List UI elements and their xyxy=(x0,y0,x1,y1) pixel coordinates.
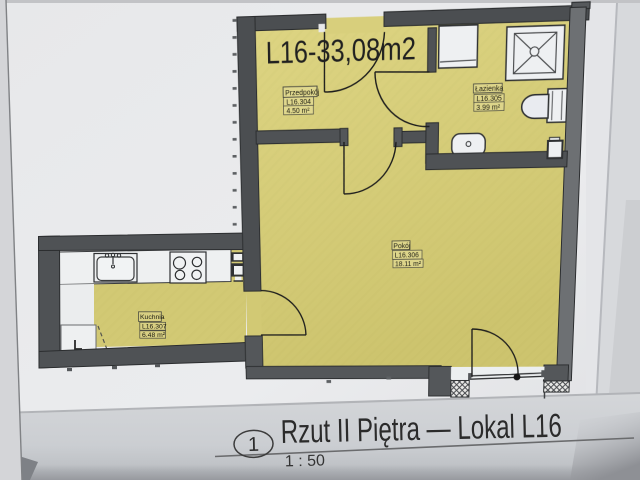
svg-text:Przedpokój: Przedpokój xyxy=(285,89,320,97)
svg-text:L16.306: L16.306 xyxy=(395,252,419,259)
svg-text:L16-33,08m2: L16-33,08m2 xyxy=(265,31,416,70)
svg-text:4.50 m²: 4.50 m² xyxy=(286,108,310,116)
svg-text:3.99 m²: 3.99 m² xyxy=(476,104,501,112)
svg-text:Pokój: Pokój xyxy=(393,243,410,250)
svg-text:18.11 m²: 18.11 m² xyxy=(395,261,422,268)
svg-text:Łazienka: Łazienka xyxy=(475,85,503,93)
